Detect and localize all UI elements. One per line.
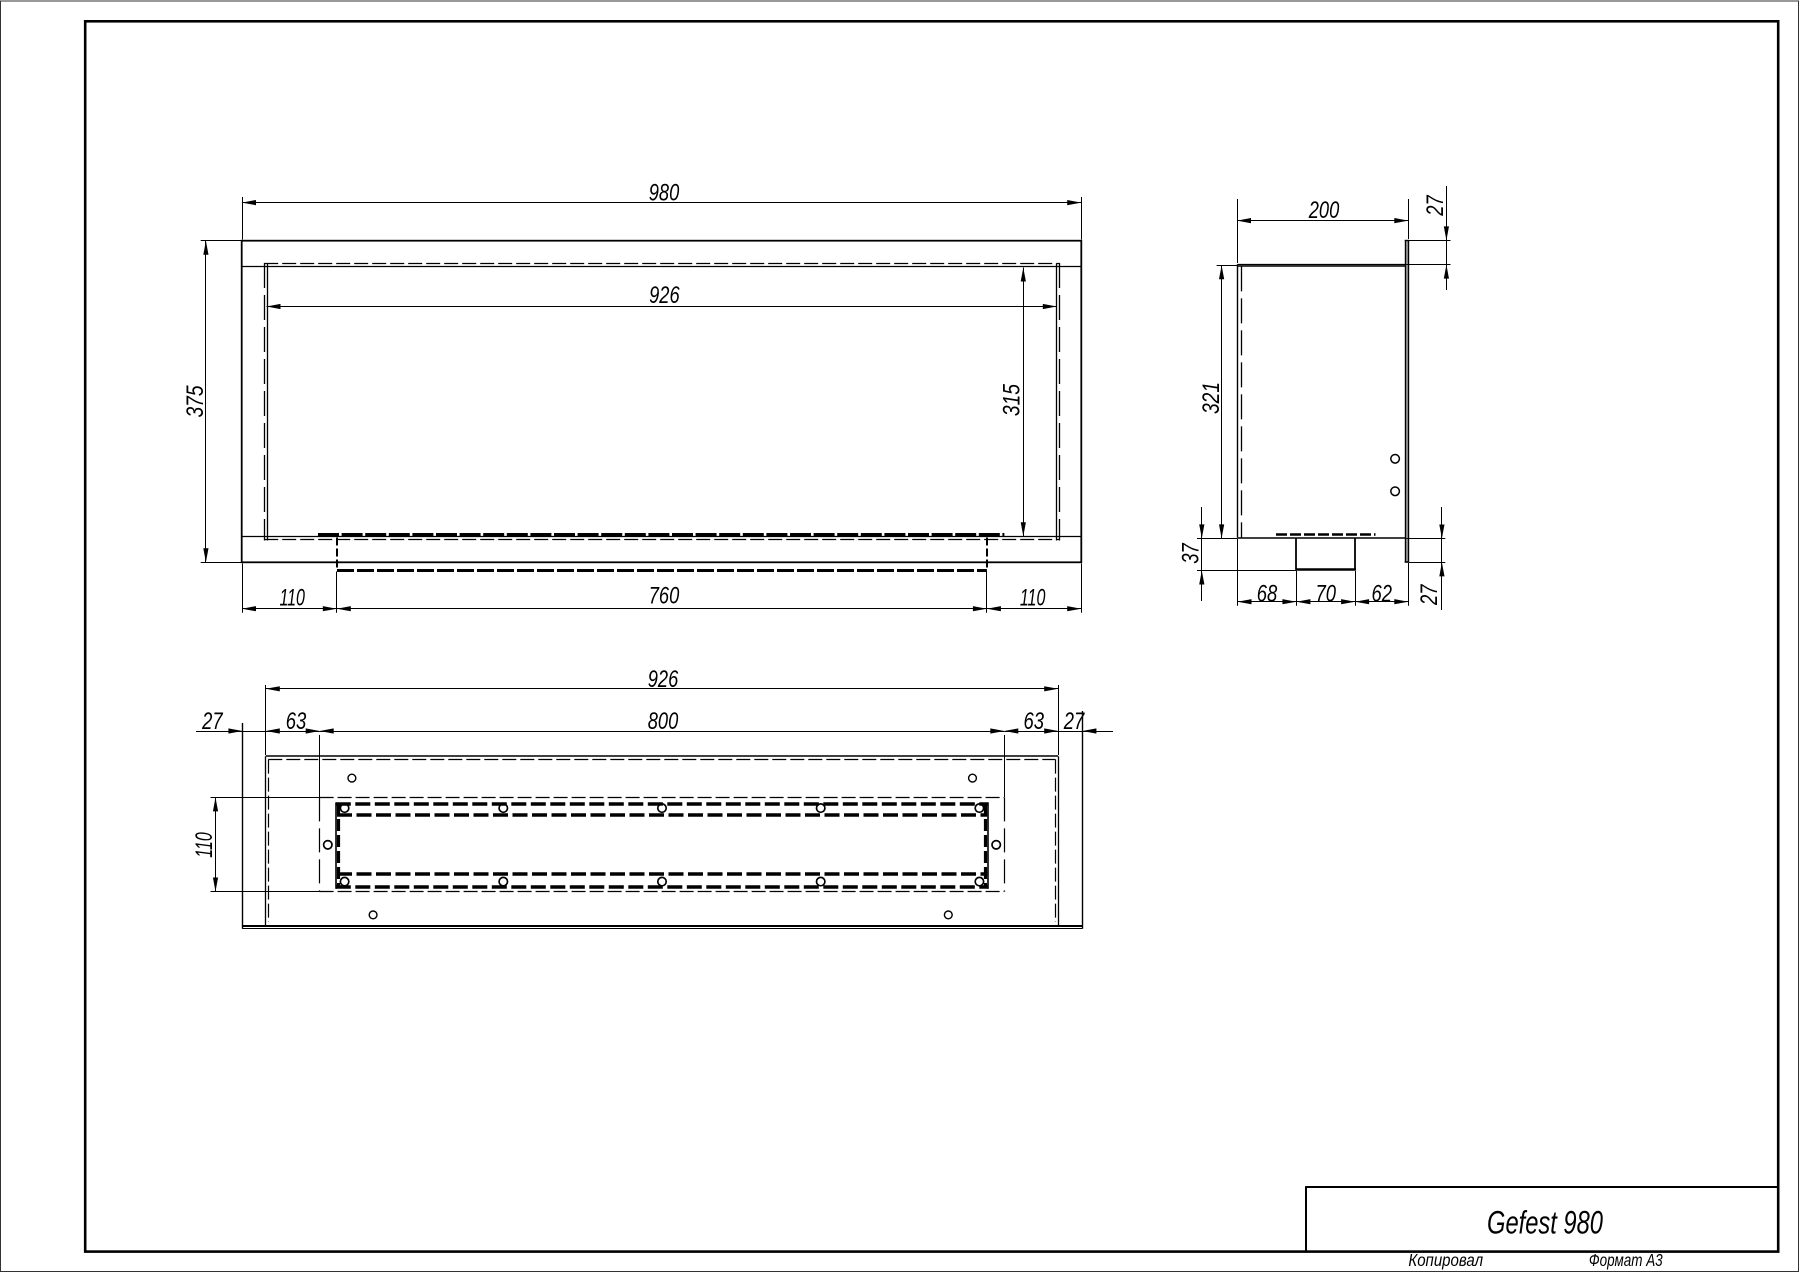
svg-text:200: 200 [1308,197,1340,224]
svg-text:62: 62 [1372,581,1393,608]
svg-text:37: 37 [1178,542,1205,564]
svg-text:375: 375 [182,385,209,418]
svg-text:760: 760 [649,583,680,610]
svg-text:980: 980 [649,180,680,207]
svg-text:27: 27 [1422,194,1449,217]
svg-text:63: 63 [1024,708,1045,735]
svg-text:Gefest 980: Gefest 980 [1487,1204,1603,1240]
svg-text:926: 926 [648,666,679,693]
svg-text:27: 27 [201,708,224,735]
svg-text:321: 321 [1198,382,1225,414]
svg-text:Копировал: Копировал [1408,1250,1483,1270]
svg-text:63: 63 [286,708,307,735]
svg-text:110: 110 [191,832,218,858]
svg-text:315: 315 [999,384,1026,417]
svg-text:110: 110 [1020,585,1046,612]
svg-text:Формат А3: Формат А3 [1589,1250,1663,1270]
svg-text:800: 800 [648,708,679,735]
svg-text:27: 27 [1063,708,1086,735]
svg-text:926: 926 [649,282,680,309]
svg-text:27: 27 [1416,583,1443,606]
svg-text:110: 110 [279,585,305,612]
svg-text:70: 70 [1316,581,1337,608]
svg-text:68: 68 [1257,581,1278,608]
